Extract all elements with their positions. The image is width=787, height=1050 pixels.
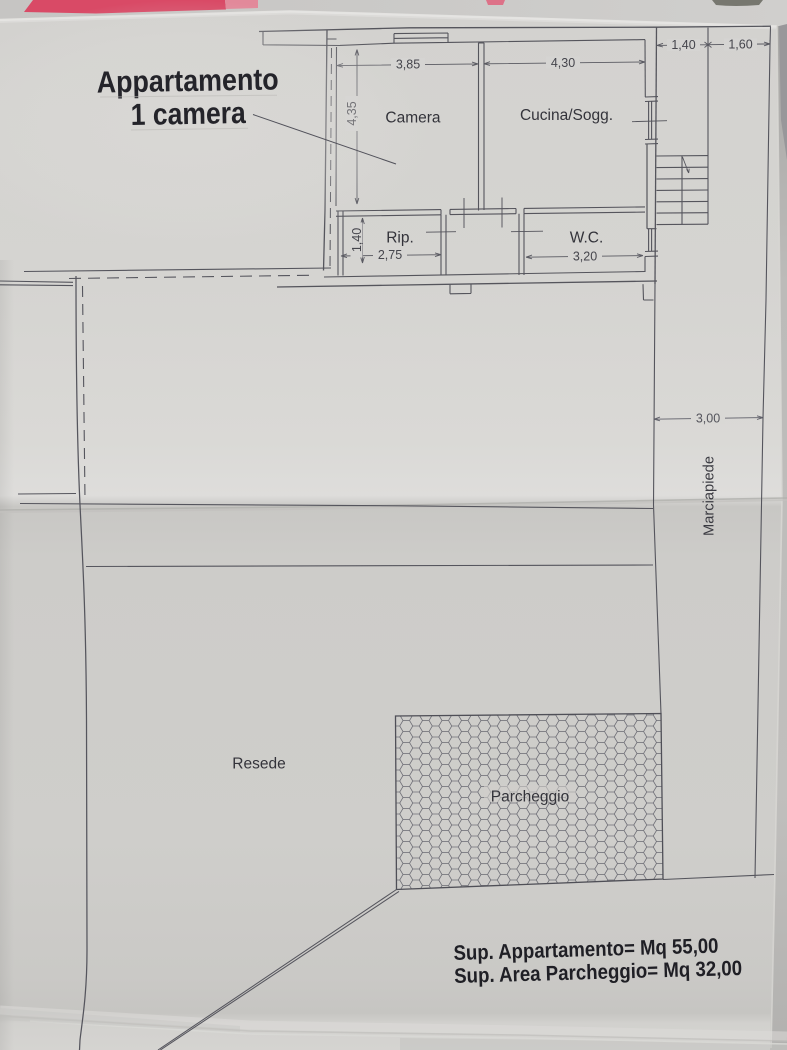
svg-text:3,00: 3,00 (696, 412, 720, 426)
svg-text:Camera: Camera (385, 110, 441, 127)
svg-text:3,20: 3,20 (573, 250, 597, 264)
svg-text:Marciapiede: Marciapiede (702, 456, 718, 536)
svg-text:W.C.: W.C. (570, 230, 604, 247)
svg-text:Cucina/Sogg.: Cucina/Sogg. (520, 107, 613, 124)
svg-text:Resede: Resede (232, 756, 285, 773)
svg-text:1,40: 1,40 (671, 38, 695, 52)
svg-text:Parcheggio: Parcheggio (491, 789, 569, 806)
svg-text:1,40: 1,40 (350, 228, 364, 252)
svg-text:4,30: 4,30 (551, 56, 575, 70)
svg-text:1 camera: 1 camera (130, 96, 246, 132)
svg-text:Appartamento: Appartamento (96, 62, 279, 99)
svg-text:1,60: 1,60 (728, 38, 752, 52)
svg-text:Rip.: Rip. (386, 230, 414, 247)
svg-text:2,75: 2,75 (378, 248, 402, 262)
